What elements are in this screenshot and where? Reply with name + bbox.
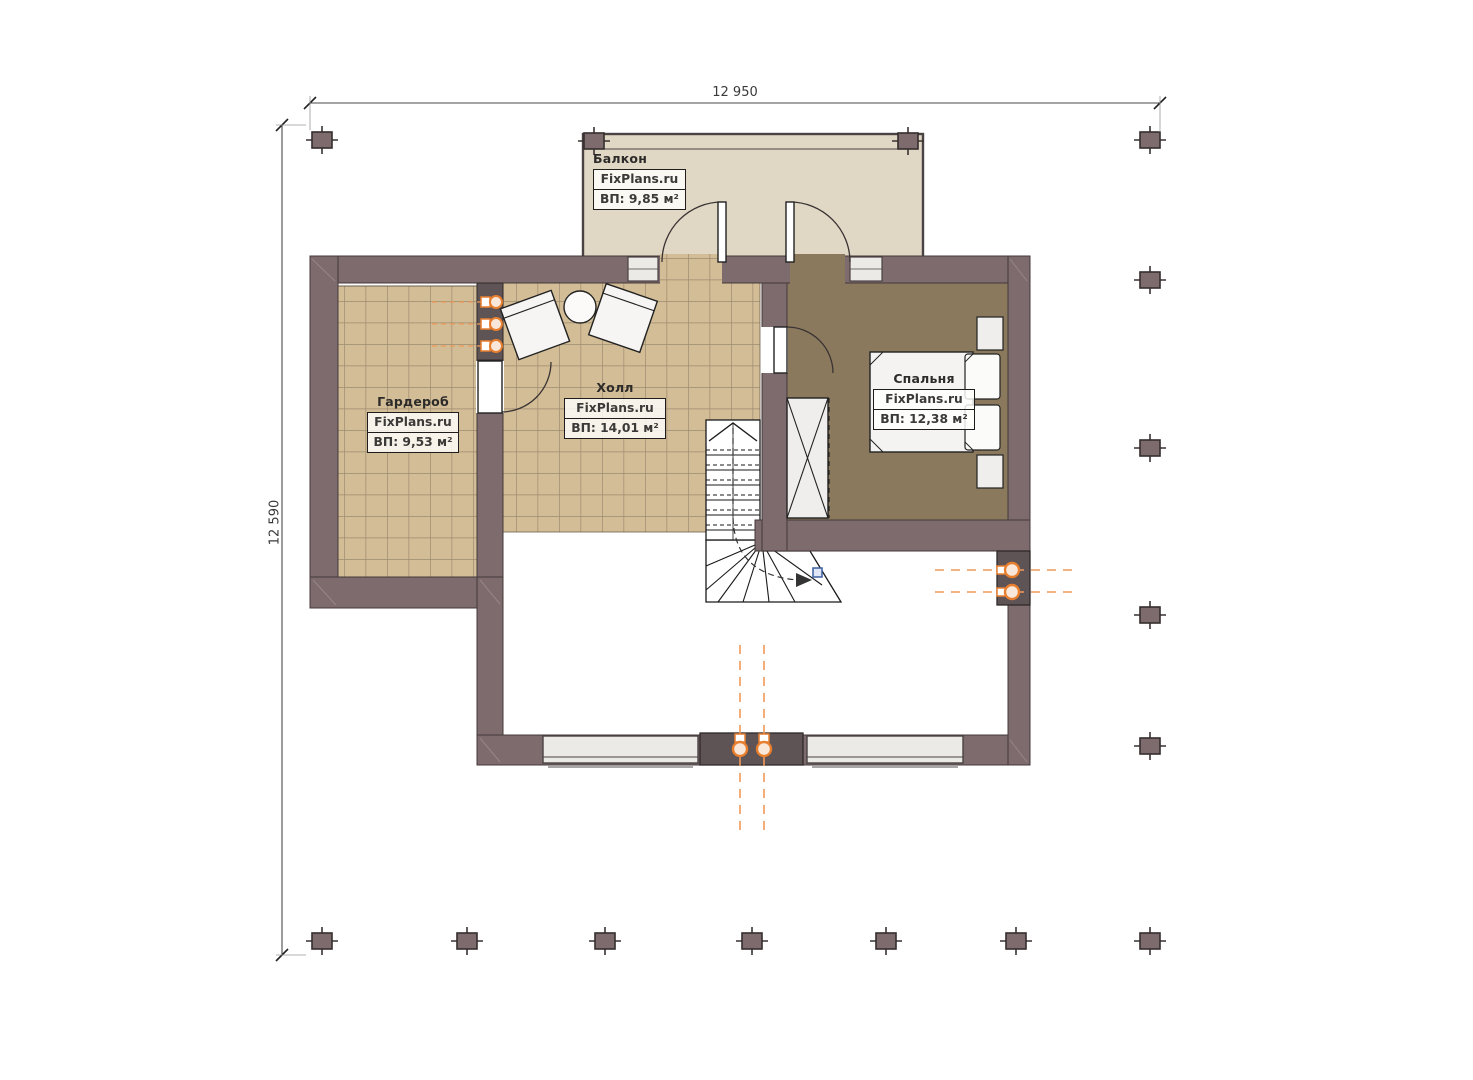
bedroom-label-boxes: FixPlans.ru ВП: 12,38 м² — [873, 389, 974, 430]
column-marker — [306, 126, 338, 154]
column-marker — [589, 927, 621, 955]
column-marker — [1000, 927, 1032, 955]
column-marker — [1134, 434, 1166, 462]
room-name-bedroom: Спальня — [893, 371, 954, 386]
column-marker — [870, 927, 902, 955]
door-leaf — [478, 361, 502, 413]
window-bottom-right — [807, 736, 963, 767]
door-leaf — [774, 327, 787, 373]
floor-plan-canvas: 12 950 12 590 Балкон FixPlans.ru ВП: 9,8… — [0, 0, 1473, 1080]
dimension-top — [304, 96, 1166, 132]
column-marker — [1134, 732, 1166, 760]
nightstand-bottom — [977, 455, 1003, 488]
column-marker — [1134, 126, 1166, 154]
room-name-balcony: Балкон — [593, 151, 647, 166]
watermark-box: FixPlans.ru — [873, 389, 974, 410]
closet — [787, 398, 829, 518]
watermark-box: FixPlans.ru — [564, 398, 665, 419]
room-name-wardrobe: Гардероб — [377, 394, 449, 409]
wardrobe-label-boxes: FixPlans.ru ВП: 9,53 м² — [367, 412, 460, 453]
column-marker — [306, 927, 338, 955]
watermark-box: FixPlans.ru — [593, 169, 686, 190]
hall-label: Холл FixPlans.ru ВП: 14,01 м² — [560, 380, 670, 439]
plan-drawing — [0, 0, 1473, 1080]
window-top-hall — [628, 257, 658, 281]
column-marker — [1134, 601, 1166, 629]
hall-label-boxes: FixPlans.ru ВП: 14,01 м² — [564, 398, 665, 439]
wall-right — [1008, 256, 1030, 765]
area-box-wardrobe: ВП: 9,53 м² — [367, 432, 460, 453]
door-leaf — [786, 202, 794, 262]
window-top-bedroom — [850, 257, 882, 281]
dimension-top-value: 12 950 — [690, 85, 780, 100]
room-name-hall: Холл — [596, 380, 633, 395]
stairs-marker — [813, 568, 822, 577]
balcony-label-boxes: FixPlans.ru ВП: 9,85 м² — [593, 169, 686, 210]
area-box-balcony: ВП: 9,85 м² — [593, 189, 686, 210]
wall-left — [310, 256, 338, 608]
area-box-hall: ВП: 14,01 м² — [564, 418, 665, 439]
dimension-left-value: 12 590 — [268, 478, 283, 568]
watermark-box: FixPlans.ru — [367, 412, 460, 433]
balcony-door2-opening — [790, 254, 845, 284]
wall-bedroom-bottom — [755, 520, 1030, 551]
nightstand-top — [977, 317, 1003, 350]
window-bottom-left — [543, 736, 698, 767]
wall-wardrobe-bottom — [310, 577, 503, 608]
wall-hall-bedroom-divider — [762, 283, 787, 551]
column-marker — [1134, 266, 1166, 294]
column-marker — [1134, 927, 1166, 955]
door-leaf — [718, 202, 726, 262]
wardrobe-label: Гардероб FixPlans.ru ВП: 9,53 м² — [358, 394, 468, 453]
column-marker — [451, 927, 483, 955]
area-box-bedroom: ВП: 12,38 м² — [873, 409, 974, 430]
bedroom-label: Спальня FixPlans.ru ВП: 12,38 м² — [872, 371, 976, 430]
riser-icon — [757, 734, 771, 756]
round-table — [564, 291, 596, 323]
balcony-door1-opening — [660, 254, 722, 284]
wall-dark-riser-block-bottom — [700, 733, 803, 765]
column-marker — [736, 927, 768, 955]
riser-icon — [733, 734, 747, 756]
balcony-label: Балкон FixPlans.ru ВП: 9,85 м² — [593, 151, 686, 210]
